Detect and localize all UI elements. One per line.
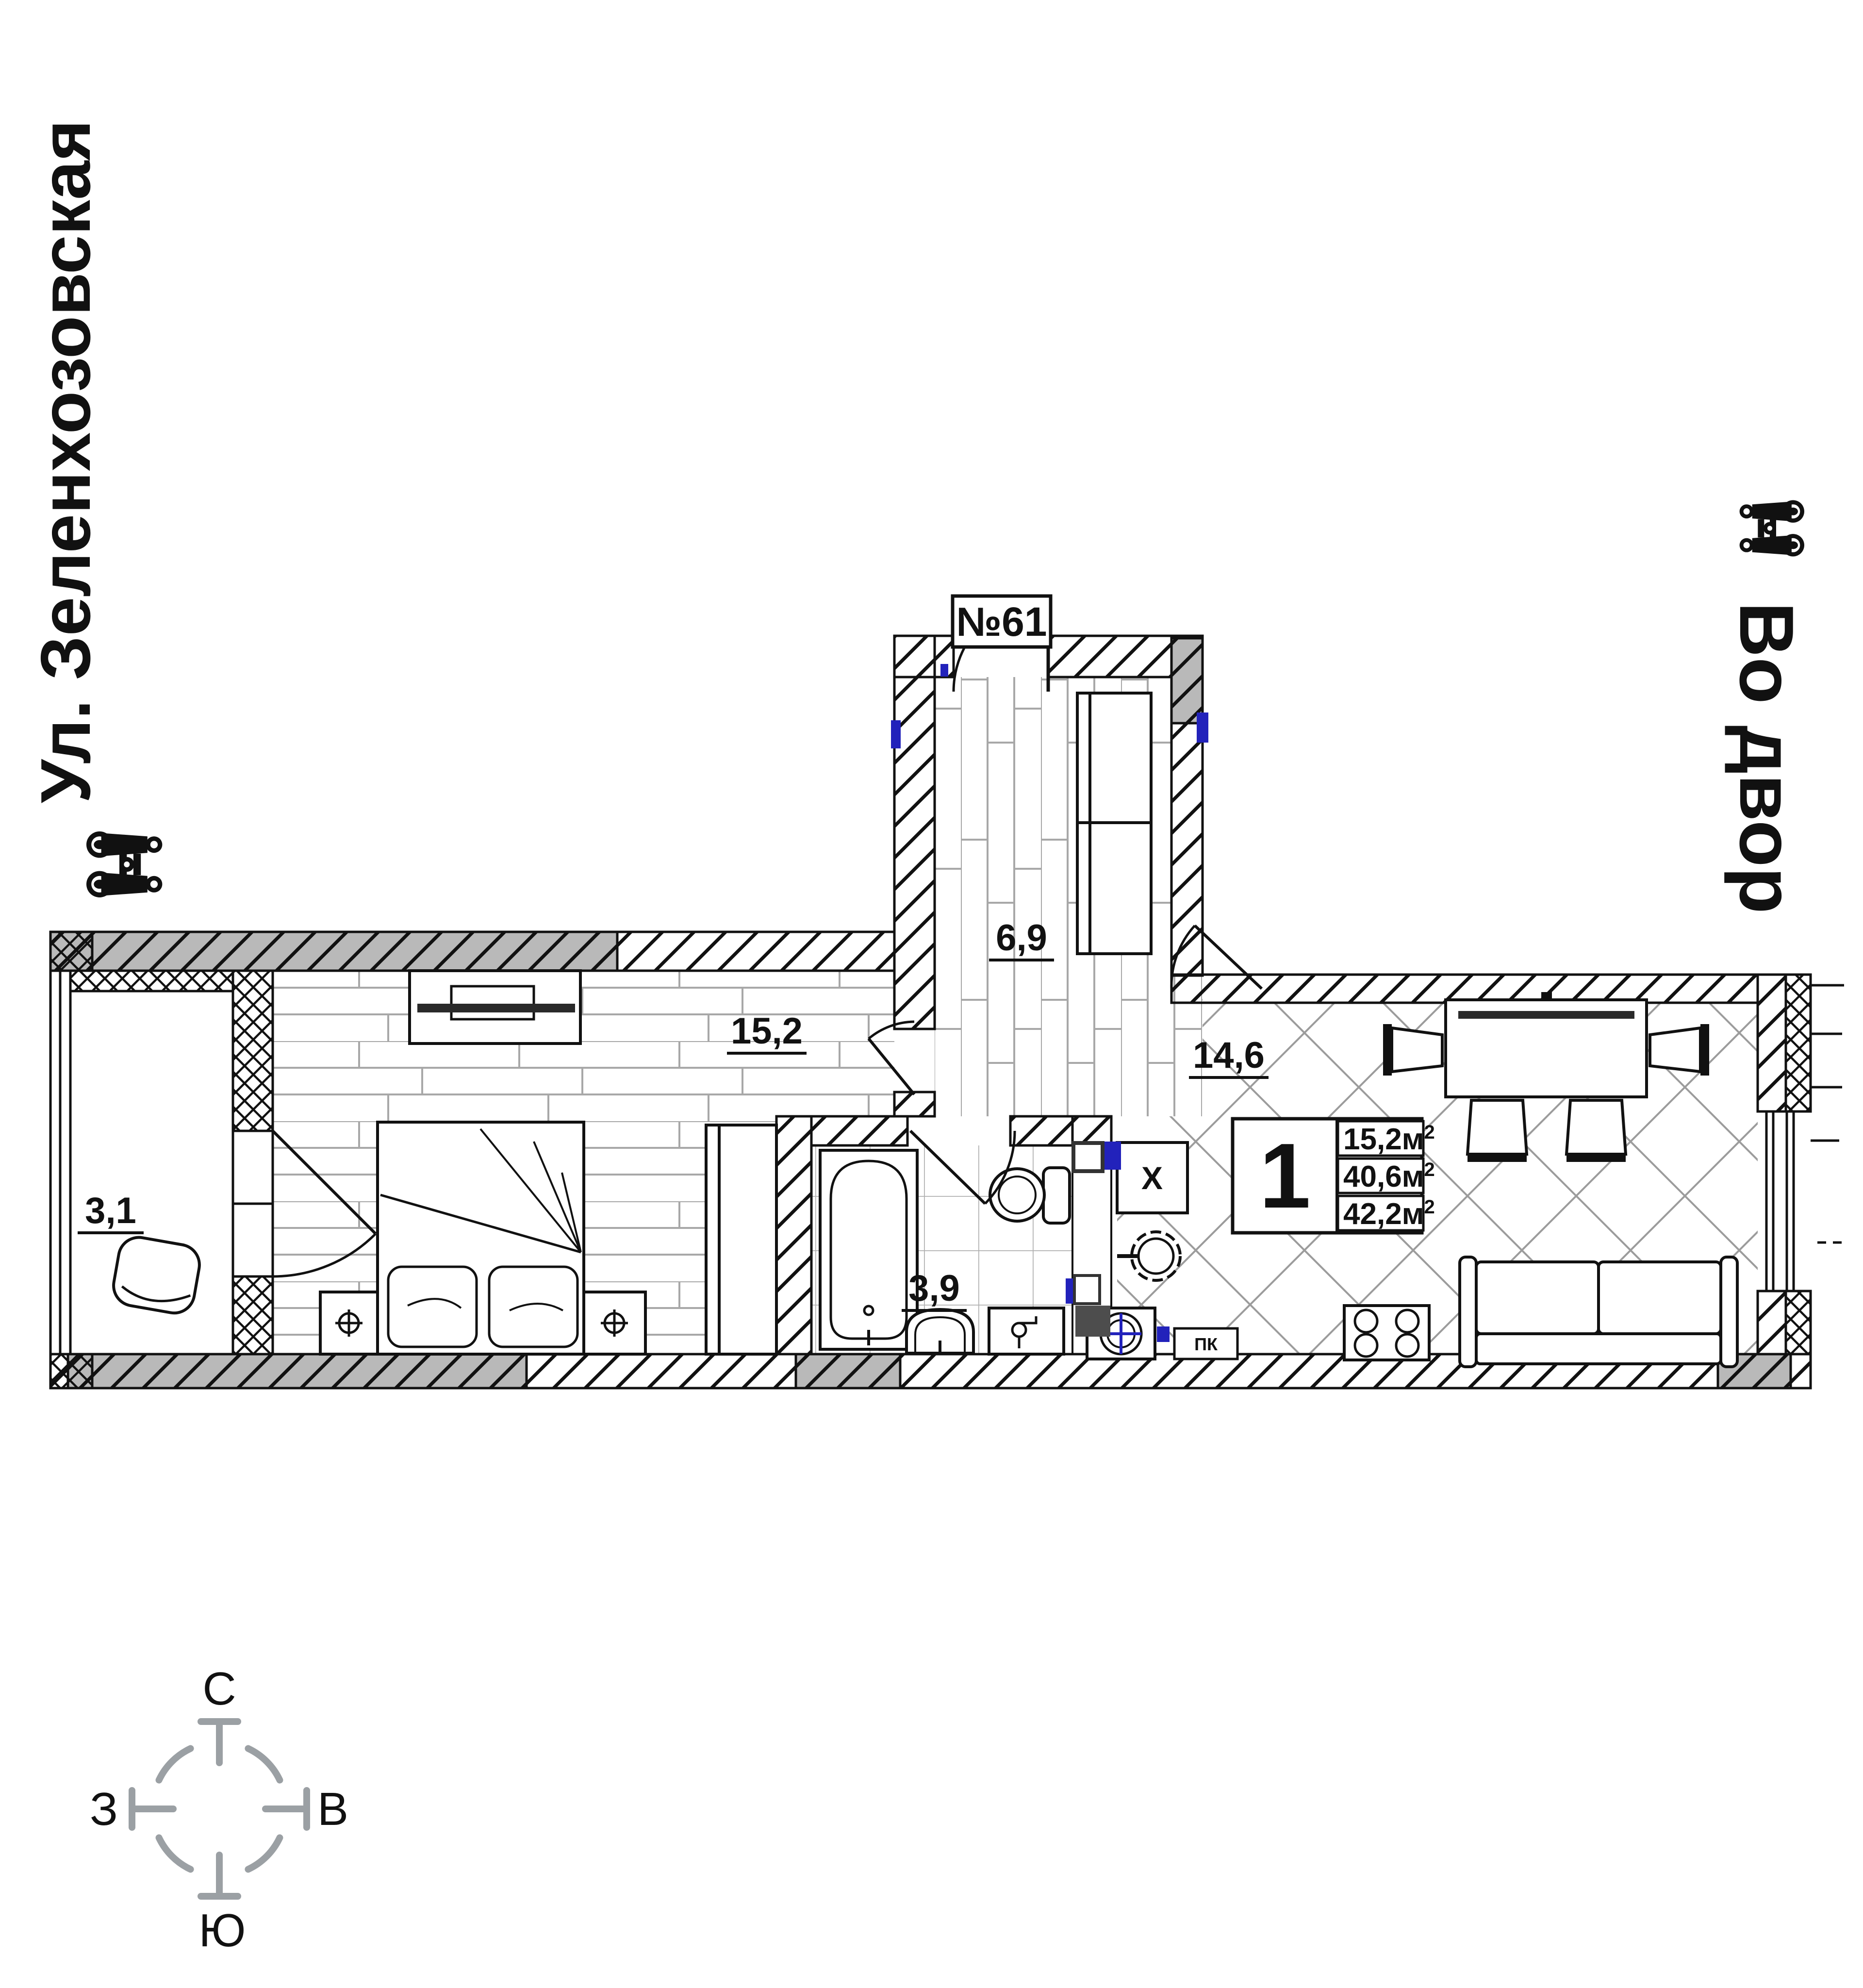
- wall-hatch: [894, 636, 935, 1029]
- wall: [617, 932, 894, 971]
- nightstand-left: [320, 1292, 378, 1354]
- street-label-right: Во двор: [1724, 500, 1809, 914]
- vent-shaft-label: X: [1141, 1160, 1163, 1196]
- riser-mark: [1197, 712, 1208, 743]
- compass: С В Ю З: [90, 1663, 348, 1956]
- compass-west: З: [90, 1783, 118, 1835]
- bedroom-area-label: 15,2: [731, 1011, 803, 1052]
- chair-bottom-2: [1566, 1100, 1626, 1162]
- compass-south: Ю: [199, 1905, 246, 1956]
- toilet: [990, 1168, 1070, 1223]
- riser-mark: [1103, 1142, 1121, 1170]
- wall-cross: [233, 971, 273, 1131]
- apartment-area: 40,6м2: [1343, 1159, 1435, 1193]
- compass-arc: [156, 1746, 191, 1780]
- floorplan-canvas: Ул. Зеленхозовская Во двор: [0, 0, 1863, 1988]
- nightstand-right: [584, 1292, 645, 1354]
- bathroom-area-label: 3,9: [908, 1268, 960, 1309]
- wall-cross: [233, 1276, 273, 1354]
- street-label-left: Ул. Зеленхозовская: [26, 120, 162, 897]
- compass-arc: [156, 1838, 191, 1872]
- wall-hatch: [1171, 636, 1203, 976]
- wall-cross: [1786, 975, 1811, 1111]
- binoculars-icon: [1740, 500, 1804, 557]
- rooms-count: 1: [1259, 1125, 1311, 1227]
- compass-arc: [248, 1746, 282, 1780]
- riser-mark: [891, 720, 901, 748]
- desk: [410, 971, 580, 1044]
- wardrobe: [706, 1125, 776, 1354]
- riser-mark: [1157, 1326, 1170, 1342]
- sofa: [1460, 1257, 1737, 1367]
- wall: [1010, 1116, 1072, 1145]
- compass-arc: [248, 1838, 282, 1872]
- kitchen-area-label: 14,6: [1193, 1035, 1265, 1076]
- wall-cross: [68, 971, 233, 991]
- wall: [1758, 1291, 1786, 1354]
- compass-north: С: [202, 1663, 236, 1715]
- wall: [811, 1116, 907, 1145]
- chair-bottom-1: [1467, 1100, 1527, 1162]
- living-area: 15,2м2: [1343, 1122, 1435, 1156]
- courtyard-label: Во двор: [1724, 602, 1809, 914]
- info-box: 1 15,2м2 40,6м2 42,2м2: [1233, 1119, 1435, 1233]
- dining-table: [1446, 992, 1647, 1097]
- apartment-number-box: №61: [953, 596, 1051, 647]
- balcony-area-label: 3,1: [85, 1190, 136, 1231]
- hall-area-label: 6,9: [996, 917, 1047, 959]
- hall-closet: [1077, 693, 1151, 954]
- total-area: 42,2м2: [1343, 1196, 1435, 1231]
- fire-cabinet-label: ПК: [1194, 1334, 1218, 1354]
- bed: [378, 1122, 584, 1354]
- tap-box: [989, 1308, 1064, 1354]
- compass-ticks: [132, 1722, 307, 1896]
- apartment-number: №61: [956, 599, 1047, 645]
- kitchen-window: [1766, 1111, 1794, 1291]
- compass-east: В: [317, 1783, 348, 1835]
- wall: [894, 1092, 935, 1116]
- sink: [907, 1309, 973, 1353]
- floorplan-page: Ул. Зеленхозовская Во двор: [0, 0, 1863, 1988]
- wall-hatch: [50, 932, 617, 971]
- wall: [1758, 975, 1786, 1111]
- dark-shaft-box: [1075, 1306, 1110, 1337]
- wall-cross: [50, 932, 92, 971]
- wall: [776, 1116, 811, 1354]
- binoculars-icon: [86, 831, 162, 897]
- riser-mark: [940, 664, 948, 677]
- dimension-ticks: [1811, 985, 1844, 1242]
- bathtub: [820, 1150, 917, 1349]
- street-name-left: Ул. Зеленхозовская: [26, 120, 105, 803]
- wall-cross: [50, 1354, 92, 1388]
- cooktop: [1344, 1306, 1429, 1360]
- armchair: [110, 1234, 202, 1316]
